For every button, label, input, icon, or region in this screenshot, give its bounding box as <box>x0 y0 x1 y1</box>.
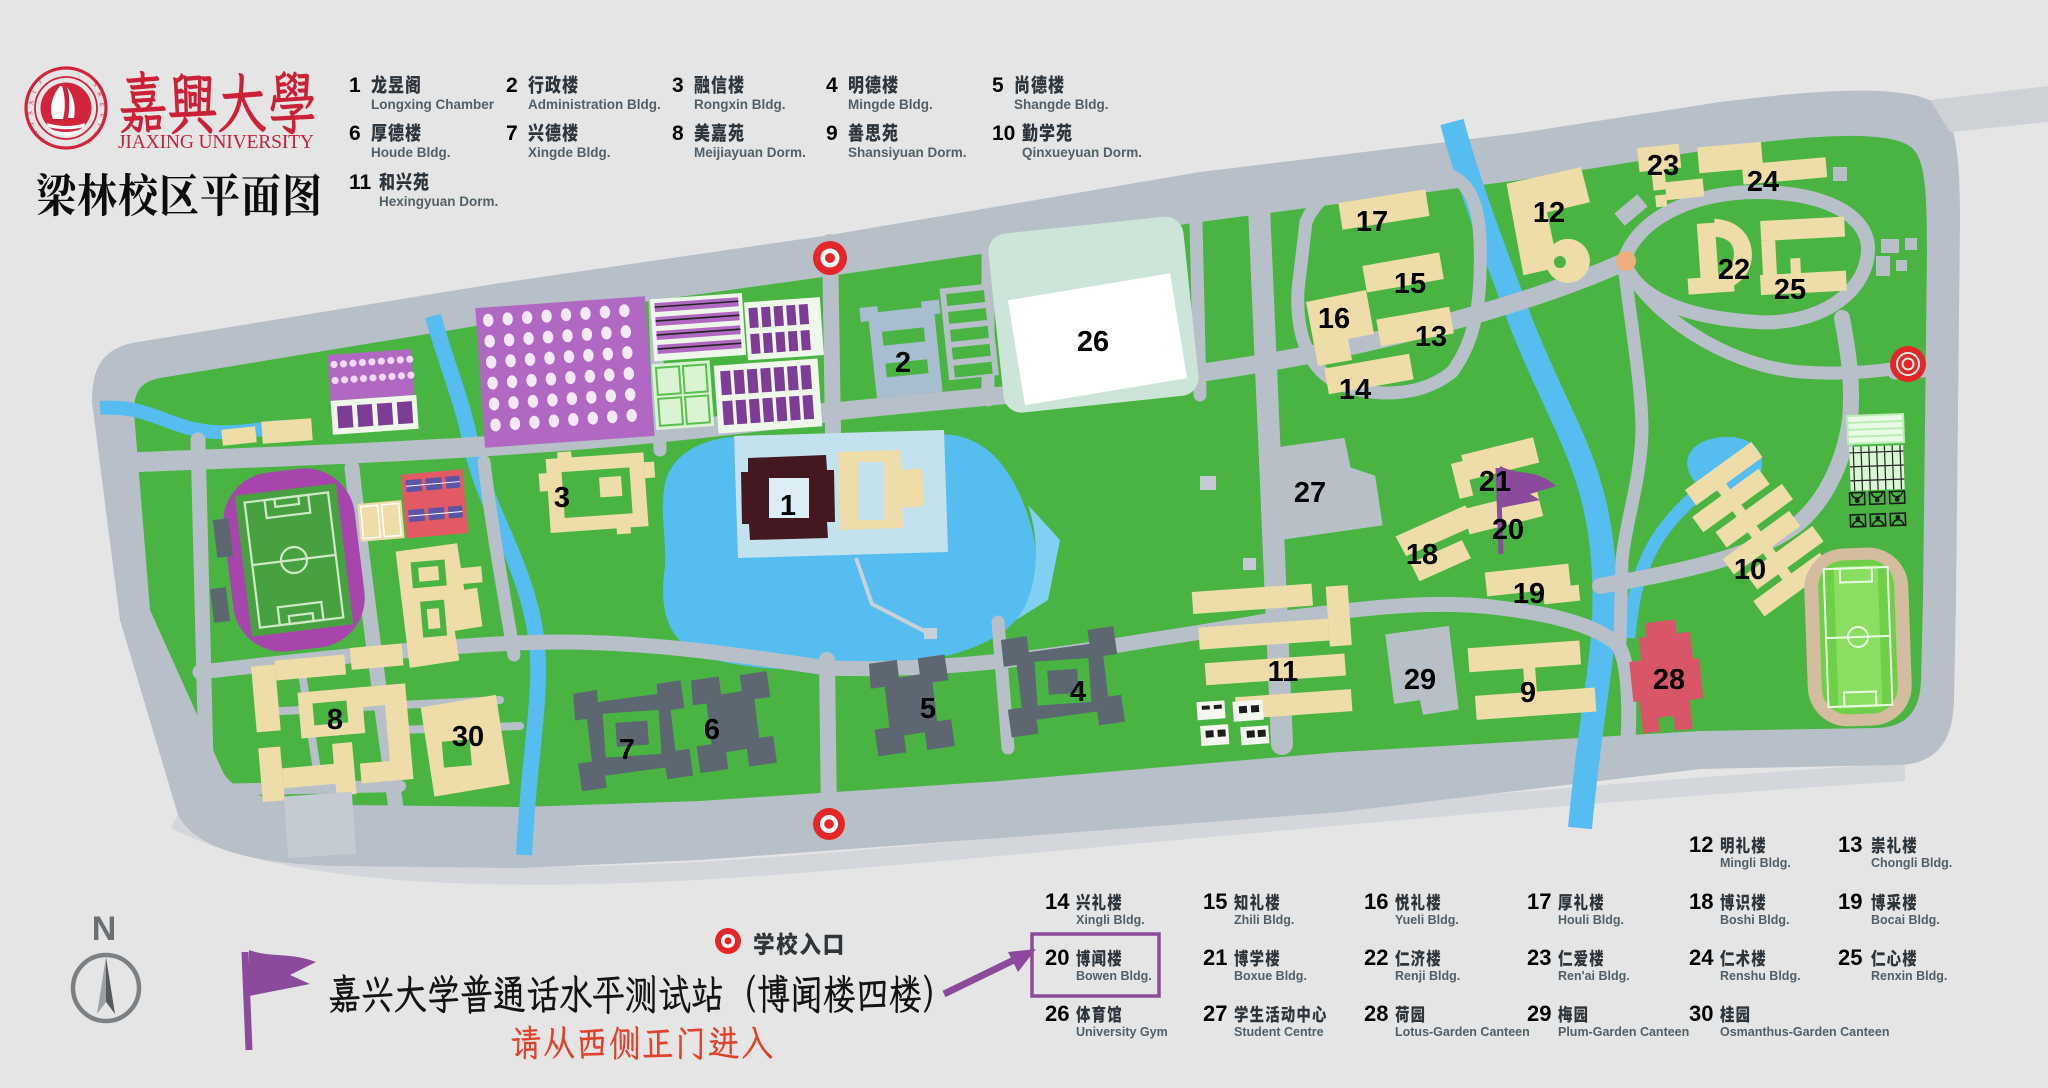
svg-text:Xingli Bldg.: Xingli Bldg. <box>1076 913 1145 927</box>
svg-text:24: 24 <box>1747 166 1779 198</box>
svg-text:9: 9 <box>826 122 838 145</box>
svg-text:University Gym: University Gym <box>1076 1025 1168 1039</box>
svg-text:13: 13 <box>1838 832 1862 857</box>
svg-text:9: 9 <box>1520 677 1536 709</box>
svg-text:11: 11 <box>1268 656 1299 688</box>
svg-text:16: 16 <box>1364 889 1388 914</box>
svg-text:21: 21 <box>1203 945 1227 970</box>
svg-text:Qinxueyuan Dorm.: Qinxueyuan Dorm. <box>1022 145 1142 160</box>
svg-text:15: 15 <box>1394 268 1426 300</box>
svg-text:Shangde Bldg.: Shangde Bldg. <box>1014 97 1109 112</box>
svg-text:15: 15 <box>1203 889 1227 914</box>
svg-text:12: 12 <box>1689 832 1713 857</box>
svg-text:23: 23 <box>1647 150 1679 182</box>
svg-text:20: 20 <box>1492 514 1524 546</box>
svg-text:5: 5 <box>992 74 1004 97</box>
svg-text:8: 8 <box>672 122 684 145</box>
svg-text:Bocai Bldg.: Bocai Bldg. <box>1871 913 1940 927</box>
svg-text:21: 21 <box>1479 466 1511 498</box>
svg-text:25: 25 <box>1838 945 1862 970</box>
svg-text:30: 30 <box>452 721 484 753</box>
svg-text:10: 10 <box>1734 554 1766 586</box>
svg-text:13: 13 <box>1415 321 1447 353</box>
svg-text:5: 5 <box>920 693 936 725</box>
svg-text:30: 30 <box>1689 1001 1713 1026</box>
svg-text:Hexingyuan Dorm.: Hexingyuan Dorm. <box>379 194 498 209</box>
svg-text:Meijiayuan Dorm.: Meijiayuan Dorm. <box>694 145 806 160</box>
svg-text:7: 7 <box>619 734 635 766</box>
svg-text:3: 3 <box>554 482 570 514</box>
svg-text:25: 25 <box>1774 274 1806 306</box>
svg-text:4: 4 <box>1070 676 1086 708</box>
svg-text:Shansiyuan Dorm.: Shansiyuan Dorm. <box>848 145 967 160</box>
svg-text:8: 8 <box>327 704 343 736</box>
svg-text:10: 10 <box>992 122 1015 145</box>
svg-text:26: 26 <box>1045 1001 1069 1026</box>
svg-text:26: 26 <box>1077 326 1109 358</box>
svg-text:18: 18 <box>1689 889 1713 914</box>
svg-text:Bowen Bldg.: Bowen Bldg. <box>1076 969 1152 983</box>
svg-text:23: 23 <box>1527 945 1551 970</box>
svg-text:N: N <box>92 910 117 948</box>
svg-text:17: 17 <box>1356 206 1388 238</box>
svg-text:Renxin Bldg.: Renxin Bldg. <box>1871 969 1947 983</box>
svg-text:12: 12 <box>1533 197 1565 229</box>
svg-text:Zhili Bldg.: Zhili Bldg. <box>1234 913 1294 927</box>
svg-text:Osmanthus-Garden Canteen: Osmanthus-Garden Canteen <box>1720 1025 1889 1039</box>
svg-text:29: 29 <box>1527 1001 1551 1026</box>
svg-text:18: 18 <box>1406 539 1438 571</box>
svg-text:1: 1 <box>780 490 796 522</box>
svg-text:Rongxin Bldg.: Rongxin Bldg. <box>694 97 786 112</box>
svg-text:16: 16 <box>1318 303 1350 335</box>
svg-text:Longxing Chamber: Longxing Chamber <box>371 97 495 112</box>
svg-text:2: 2 <box>895 347 911 379</box>
svg-text:Renshu Bldg.: Renshu Bldg. <box>1720 969 1801 983</box>
svg-text:22: 22 <box>1364 945 1388 970</box>
svg-text:28: 28 <box>1653 664 1685 696</box>
svg-text:Boxue Bldg.: Boxue Bldg. <box>1234 969 1307 983</box>
svg-text:14: 14 <box>1339 374 1371 406</box>
svg-text:Plum-Garden Canteen: Plum-Garden Canteen <box>1558 1025 1689 1039</box>
svg-text:Student Centre: Student Centre <box>1234 1025 1324 1039</box>
svg-text:27: 27 <box>1203 1001 1227 1026</box>
svg-text:1: 1 <box>349 74 361 97</box>
svg-text:20: 20 <box>1045 945 1069 970</box>
svg-text:19: 19 <box>1838 889 1862 914</box>
svg-text:Xingde Bldg.: Xingde Bldg. <box>528 145 611 160</box>
svg-text:11: 11 <box>349 171 372 194</box>
svg-text:Ren'ai Bldg.: Ren'ai Bldg. <box>1558 969 1630 983</box>
svg-text:29: 29 <box>1404 664 1436 696</box>
svg-text:17: 17 <box>1527 889 1551 914</box>
svg-text:Renji Bldg.: Renji Bldg. <box>1395 969 1460 983</box>
svg-text:JIAXING UNIVERSITY: JIAXING UNIVERSITY <box>118 132 314 153</box>
svg-text:24: 24 <box>1689 945 1714 970</box>
svg-text:28: 28 <box>1364 1001 1388 1026</box>
svg-text:7: 7 <box>506 122 518 145</box>
svg-text:Boshi Bldg.: Boshi Bldg. <box>1720 913 1789 927</box>
svg-text:4: 4 <box>826 74 838 97</box>
svg-text:6: 6 <box>704 714 720 746</box>
svg-text:14: 14 <box>1045 889 1070 914</box>
svg-text:22: 22 <box>1718 254 1750 286</box>
svg-text:Houli Bldg.: Houli Bldg. <box>1558 913 1624 927</box>
svg-text:Yueli Bldg.: Yueli Bldg. <box>1395 913 1459 927</box>
svg-text:2: 2 <box>506 74 518 97</box>
svg-text:Mingli Bldg.: Mingli Bldg. <box>1720 856 1791 870</box>
svg-text:Lotus-Garden Canteen: Lotus-Garden Canteen <box>1395 1025 1530 1039</box>
svg-text:Houde Bldg.: Houde Bldg. <box>371 145 451 160</box>
svg-text:27: 27 <box>1294 477 1326 509</box>
svg-text:3: 3 <box>672 74 684 97</box>
svg-text:Mingde Bldg.: Mingde Bldg. <box>848 97 933 112</box>
svg-text:Administration Bldg.: Administration Bldg. <box>528 97 661 112</box>
svg-text:19: 19 <box>1513 578 1545 610</box>
svg-text:Chongli Bldg.: Chongli Bldg. <box>1871 856 1952 870</box>
svg-text:6: 6 <box>349 122 361 145</box>
